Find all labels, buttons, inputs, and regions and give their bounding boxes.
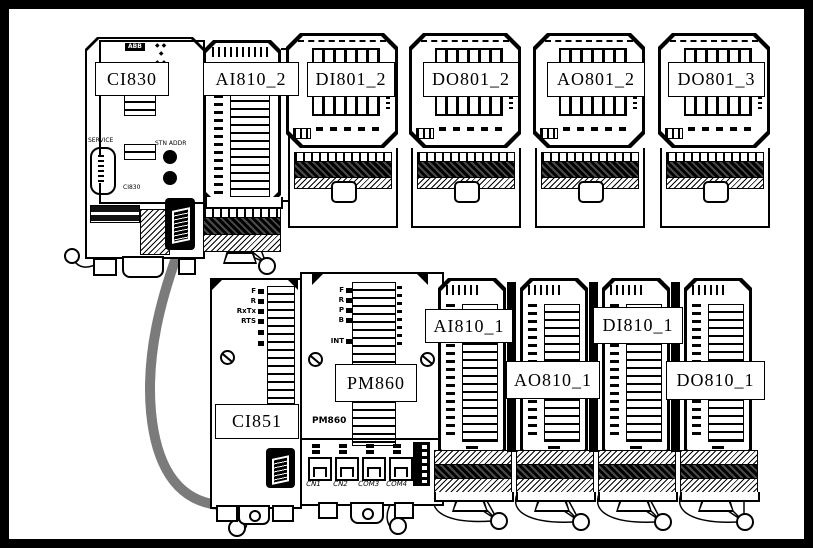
led-r: R — [318, 297, 352, 304]
led-extra-1 — [258, 330, 264, 335]
locking-screw[interactable] — [220, 350, 235, 365]
port-led-2 — [312, 450, 320, 454]
label-ao810_1[interactable]: AO810_1 — [506, 361, 600, 399]
port-cn1[interactable] — [308, 457, 332, 481]
hardware-diagram: ABB ◆◆ ◆◆◆ SERVICE STN ADDR CI830 CI830 — [0, 0, 813, 548]
mounting-foot-right — [394, 502, 414, 519]
top-channel-marks — [692, 285, 724, 295]
corner-claw-right — [417, 274, 428, 285]
label-ao801_2[interactable]: AO801_2 — [547, 62, 645, 97]
led-f-label: F — [318, 287, 344, 294]
led-f: F — [230, 288, 264, 295]
cable-coil — [65, 249, 79, 263]
corner-code-chip — [416, 128, 434, 139]
mounting-foot-left — [216, 505, 238, 522]
expansion-connector — [413, 442, 430, 486]
bottom-dashed-row — [688, 127, 758, 131]
label-di801_2[interactable]: DI801_2 — [307, 62, 395, 97]
led-arrow-column — [214, 95, 223, 195]
led-r-label: R — [230, 298, 256, 305]
led-f-indicator — [258, 289, 264, 294]
port-cn1-label: CN1 — [305, 481, 321, 488]
port-com4-label: COM4 — [385, 481, 407, 488]
led-r: R — [230, 298, 264, 305]
led-f-label: F — [230, 288, 256, 295]
station-address-label: STN ADDR — [155, 141, 186, 147]
port-com4[interactable] — [389, 457, 413, 481]
power-terminal-block — [90, 205, 140, 223]
bottom-mark — [630, 446, 642, 449]
port-led-6 — [366, 450, 374, 454]
din-rail-clip — [578, 181, 604, 203]
top-channel-marks — [212, 47, 268, 57]
port-led-3 — [339, 444, 347, 448]
mounting-foot-left — [93, 258, 117, 276]
port-com3[interactable] — [362, 457, 386, 481]
vent-slots-lower — [124, 144, 156, 160]
foot-hole — [249, 510, 261, 522]
bottom-dashed-row — [439, 127, 509, 131]
led-p: P — [318, 307, 352, 314]
led-r-indicator — [258, 299, 264, 304]
bottom-dashed-row — [563, 127, 633, 131]
top-channel-marks — [610, 285, 642, 295]
corner-claw-left — [312, 274, 323, 285]
led-rxtx: RxTx — [230, 308, 264, 315]
label-do801_2[interactable]: DO801_2 — [423, 62, 519, 97]
port-led-5 — [366, 444, 374, 448]
locking-screw-right[interactable] — [420, 352, 435, 367]
top-dashed-line — [545, 40, 633, 42]
electrical-modulebus-connector[interactable] — [266, 448, 295, 488]
expansion-connector-pins — [422, 445, 427, 483]
top-dashed-line — [670, 40, 758, 42]
port-led-1 — [312, 444, 320, 448]
abb-logo: ABB — [125, 43, 145, 51]
top-dashed-line — [421, 40, 509, 42]
top-channel-marks — [446, 285, 478, 295]
label-ci851[interactable]: CI851 — [215, 404, 299, 439]
terminal-screw-row — [203, 234, 281, 252]
label-ai810_2[interactable]: AI810_2 — [203, 62, 299, 96]
top-dashed-line — [298, 40, 386, 42]
port-cn2-label: CN2 — [332, 481, 348, 488]
led-int-label: INT — [318, 338, 344, 345]
led-f: F — [318, 287, 352, 294]
rotary-switch-upper[interactable] — [163, 150, 177, 164]
label-ai810_1[interactable]: AI810_1 — [425, 309, 513, 343]
db9-pins — [98, 155, 104, 183]
vent-slats — [267, 286, 295, 404]
led-rts-indicator — [258, 319, 264, 324]
module-body-text: PM860 — [312, 416, 346, 426]
bottom-mark — [712, 446, 724, 449]
locking-screw-left[interactable] — [308, 352, 323, 367]
led-rxtx-label: RxTx — [230, 308, 256, 315]
corner-code-chip — [540, 128, 558, 139]
port-led-7 — [393, 444, 401, 448]
led-rxtx-indicator — [258, 309, 264, 314]
module-ci851[interactable]: F R RxTx RTS — [210, 278, 300, 523]
mounting-foot — [534, 500, 570, 512]
bottom-mark — [466, 446, 478, 449]
rotary-switch-lower[interactable] — [163, 171, 177, 185]
din-rail-clip — [331, 181, 357, 203]
service-port-label: SERVICE — [88, 138, 113, 144]
module-ao810_1[interactable] — [520, 278, 592, 523]
mounting-foot — [698, 500, 734, 512]
service-db9-connector — [90, 147, 116, 195]
module-do810_1[interactable] — [684, 278, 756, 523]
bottom-dashed-row — [316, 127, 386, 131]
led-p-label: P — [318, 307, 344, 314]
led-rts: RTS — [230, 318, 264, 325]
label-di810_1[interactable]: DI810_1 — [593, 307, 683, 344]
module-body-text: CI830 — [123, 185, 140, 191]
port-com3-label: COM3 — [357, 481, 379, 488]
port-cn2[interactable] — [335, 457, 359, 481]
led-int: INT — [318, 338, 352, 345]
led-rts-label: RTS — [230, 318, 256, 325]
mounting-foot-left — [318, 502, 338, 519]
mounting-foot-right — [178, 258, 196, 275]
led-b-label: B — [318, 317, 344, 324]
mounting-foot-center — [238, 505, 270, 525]
section-divider — [300, 438, 440, 440]
led-b: B — [318, 317, 352, 324]
label-ci830[interactable]: CI830 — [95, 62, 169, 96]
side-led-column — [397, 286, 402, 346]
vent-slots-upper — [124, 94, 156, 116]
mounting-foot — [616, 500, 652, 512]
din-rail-clip — [703, 181, 729, 203]
label-do801_3[interactable]: DO801_3 — [668, 62, 765, 97]
label-do810_1[interactable]: DO810_1 — [666, 361, 765, 400]
foot-hole — [362, 508, 374, 520]
port-led-8 — [393, 450, 401, 454]
led-extra-2 — [258, 341, 264, 346]
mounting-foot — [223, 252, 257, 264]
mounting-foot-center — [350, 502, 384, 524]
top-channel-marks — [528, 285, 560, 295]
modulebus-connector[interactable] — [165, 198, 195, 250]
label-pm860[interactable]: PM860 — [335, 364, 417, 402]
corner-code-chip — [665, 128, 683, 139]
corner-code-chip — [293, 128, 311, 139]
bottom-mark — [548, 446, 560, 449]
mounting-foot — [452, 500, 488, 512]
vent-slats — [230, 93, 270, 197]
port-led-4 — [339, 450, 347, 454]
mounting-foot-right — [272, 505, 294, 522]
corner-claw-left — [212, 280, 222, 290]
din-rail-clip — [454, 181, 480, 203]
led-r-label: R — [318, 297, 344, 304]
mounting-foot-center — [122, 256, 164, 278]
